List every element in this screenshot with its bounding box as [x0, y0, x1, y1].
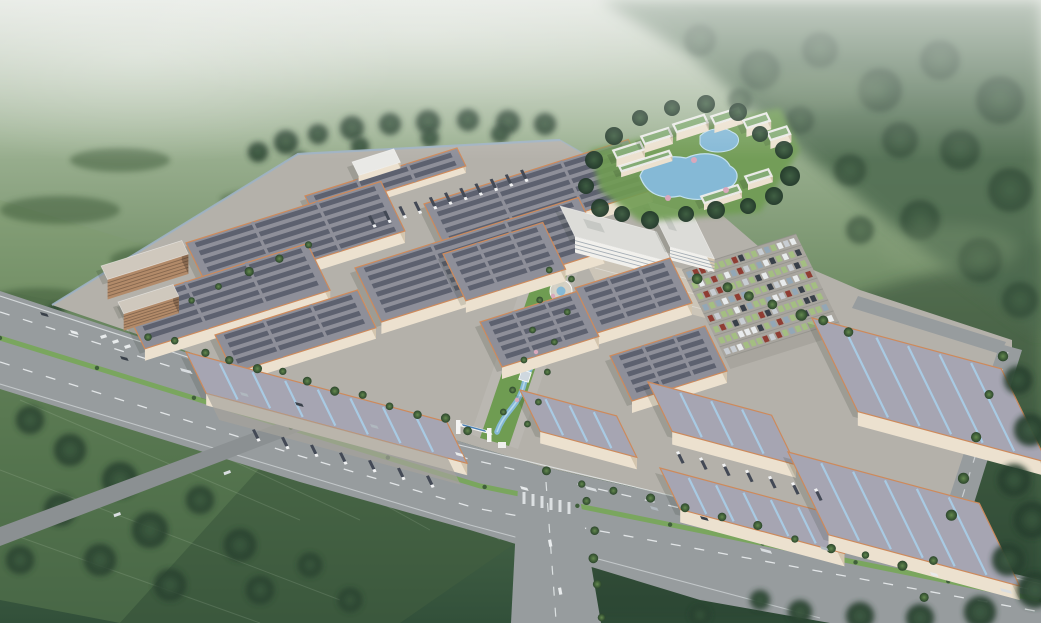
field-tree-clump	[298, 553, 322, 577]
tree	[609, 487, 617, 495]
forest-tree-clump	[998, 464, 1030, 496]
tree	[509, 387, 516, 394]
field-tree-clump	[224, 529, 256, 561]
tree	[305, 241, 312, 248]
tree	[593, 580, 602, 589]
tree	[744, 291, 754, 301]
forest-tree-clump	[740, 198, 756, 214]
median-shrub	[853, 560, 857, 564]
tree	[590, 526, 599, 535]
tree	[818, 316, 828, 326]
mountain-tree-clump	[988, 168, 1032, 212]
tree	[551, 339, 558, 346]
blossom-tree	[665, 195, 671, 201]
tree	[589, 553, 599, 563]
forest-tree-clump	[750, 590, 770, 610]
plaza-pool	[557, 287, 566, 296]
tree	[791, 535, 798, 542]
field-tree-clump	[186, 486, 214, 514]
forest-tree-clump	[641, 211, 659, 229]
hill-clearing	[880, 224, 1020, 276]
tree	[524, 421, 531, 428]
tree	[201, 349, 209, 357]
tree	[144, 333, 152, 341]
tree	[441, 413, 450, 422]
tree	[253, 364, 262, 373]
tree	[796, 309, 808, 321]
mountain-tree-clump	[846, 216, 874, 244]
tree	[245, 267, 254, 276]
tree	[521, 357, 528, 364]
tree	[275, 255, 283, 263]
forest-tree-clump	[765, 187, 783, 205]
tree	[225, 356, 233, 364]
tree	[844, 327, 854, 337]
tree	[215, 283, 222, 290]
tree	[564, 309, 571, 316]
field-tree-clump	[54, 434, 86, 466]
forest-tree-clump	[992, 544, 1024, 576]
tree	[413, 411, 422, 420]
tree	[529, 327, 536, 334]
tree	[826, 544, 835, 553]
tree	[767, 300, 777, 310]
tree	[500, 409, 507, 416]
tree	[946, 510, 957, 521]
guard-hut	[498, 442, 506, 448]
gate-pylon	[487, 428, 492, 442]
mountain-tree-clump	[1002, 282, 1038, 318]
field-tree-clump	[6, 546, 34, 574]
tree	[171, 337, 179, 345]
tree	[971, 432, 981, 442]
forest-tree-clump	[591, 199, 609, 217]
tree	[753, 521, 762, 530]
blossom-shrub	[551, 294, 555, 298]
tree	[692, 273, 703, 284]
tree	[463, 426, 472, 435]
gate-pylon	[456, 420, 461, 434]
tree	[862, 551, 869, 558]
tree	[536, 297, 543, 304]
forest-tree-clump	[788, 600, 812, 623]
forest-tree-clump	[780, 166, 800, 186]
tree	[578, 480, 585, 487]
field-tree-clump	[154, 569, 186, 601]
tree	[386, 402, 394, 410]
tree	[535, 399, 542, 406]
tree	[681, 503, 690, 512]
tree	[330, 387, 339, 396]
tree	[568, 276, 575, 283]
field-tree-clump	[246, 576, 274, 604]
hedgerow	[0, 196, 120, 224]
median-shrub	[575, 504, 579, 508]
tree	[598, 614, 606, 622]
tree	[958, 473, 969, 484]
field-tree-clump	[84, 544, 116, 576]
median-shrub	[482, 485, 486, 489]
forest-tree-clump	[707, 201, 725, 219]
tree	[582, 497, 590, 505]
atmosphere-haze	[0, 0, 1041, 165]
tree	[646, 494, 655, 503]
tree	[985, 390, 994, 399]
blossom-tree	[723, 187, 729, 193]
median-shrub	[192, 396, 196, 400]
tree	[920, 593, 929, 602]
tree	[544, 369, 551, 376]
tree	[929, 556, 938, 565]
tree	[897, 561, 907, 571]
tree	[542, 466, 551, 475]
median-shrub	[668, 522, 672, 526]
field-tree-clump	[338, 588, 362, 612]
industrial-park-scene	[0, 0, 1041, 623]
median-shrub	[95, 366, 99, 370]
field-tree-clump	[16, 406, 44, 434]
tree	[303, 377, 312, 386]
tree	[279, 368, 286, 375]
tree	[188, 297, 194, 303]
field-tree-clump	[132, 512, 168, 548]
tree	[998, 351, 1008, 361]
forest-tree-clump	[614, 206, 630, 222]
blossom-shrub	[534, 350, 538, 354]
forest-tree-clump	[578, 178, 594, 194]
forest-tree-clump	[678, 206, 694, 222]
forest-tree-clump	[1004, 366, 1032, 394]
tree	[359, 391, 367, 399]
aerial-rendering-canvas	[0, 0, 1041, 623]
tree	[546, 267, 553, 274]
blossom-shrub	[515, 398, 519, 402]
tree	[718, 513, 727, 522]
tree	[723, 282, 733, 292]
